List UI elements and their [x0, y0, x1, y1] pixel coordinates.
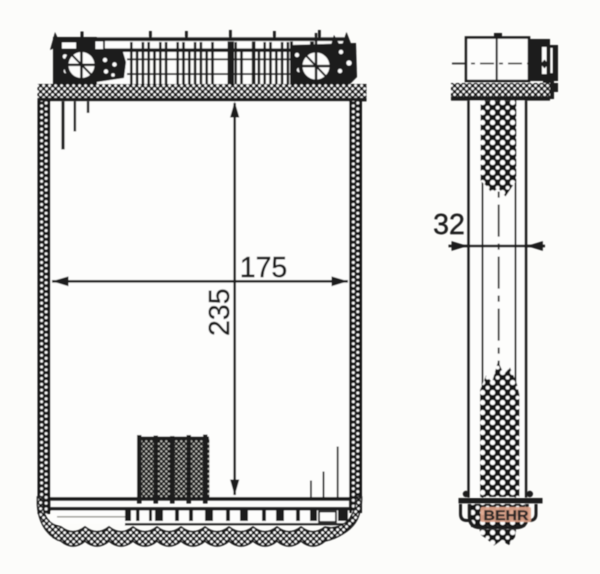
svg-text:235: 235 — [204, 288, 236, 336]
svg-text:175: 175 — [240, 252, 288, 284]
svg-text:BEHR: BEHR — [484, 507, 529, 523]
svg-text:32: 32 — [433, 209, 465, 241]
